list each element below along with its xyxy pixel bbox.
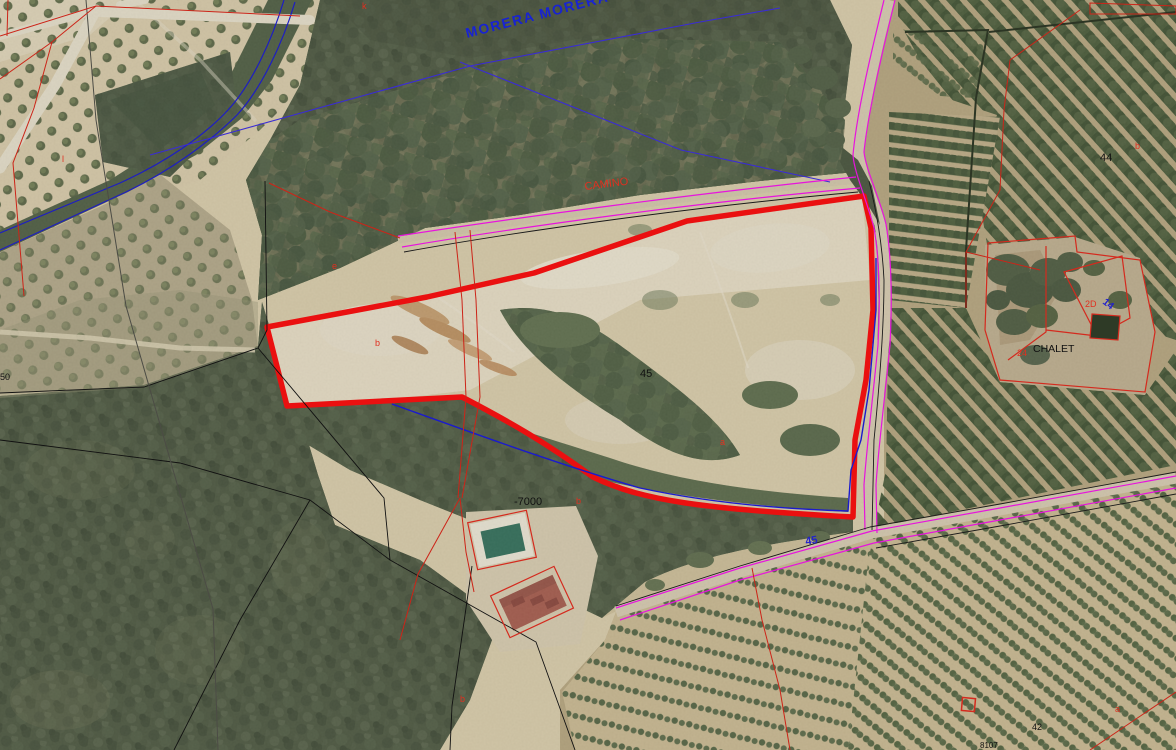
- svg-text:-7000: -7000: [514, 496, 542, 508]
- svg-text:b: b: [1135, 141, 1140, 151]
- svg-text:42: 42: [1032, 722, 1042, 732]
- svg-text:2D: 2D: [1085, 299, 1097, 309]
- svg-text:a: a: [1115, 704, 1120, 714]
- svg-text:44: 44: [1100, 152, 1112, 164]
- svg-text:b: b: [460, 694, 465, 704]
- svg-text:e: e: [332, 261, 337, 271]
- svg-text:45: 45: [804, 534, 818, 548]
- svg-text:24: 24: [1017, 348, 1027, 358]
- svg-text:l: l: [62, 154, 64, 164]
- svg-text:b: b: [576, 496, 581, 506]
- svg-text:50: 50: [0, 372, 10, 382]
- svg-text:b: b: [375, 338, 380, 348]
- svg-text:45: 45: [640, 368, 652, 380]
- svg-text:CHALET: CHALET: [1033, 343, 1075, 355]
- svg-text:8107: 8107: [980, 741, 998, 750]
- svg-text:k: k: [362, 1, 367, 11]
- svg-text:a: a: [720, 437, 725, 447]
